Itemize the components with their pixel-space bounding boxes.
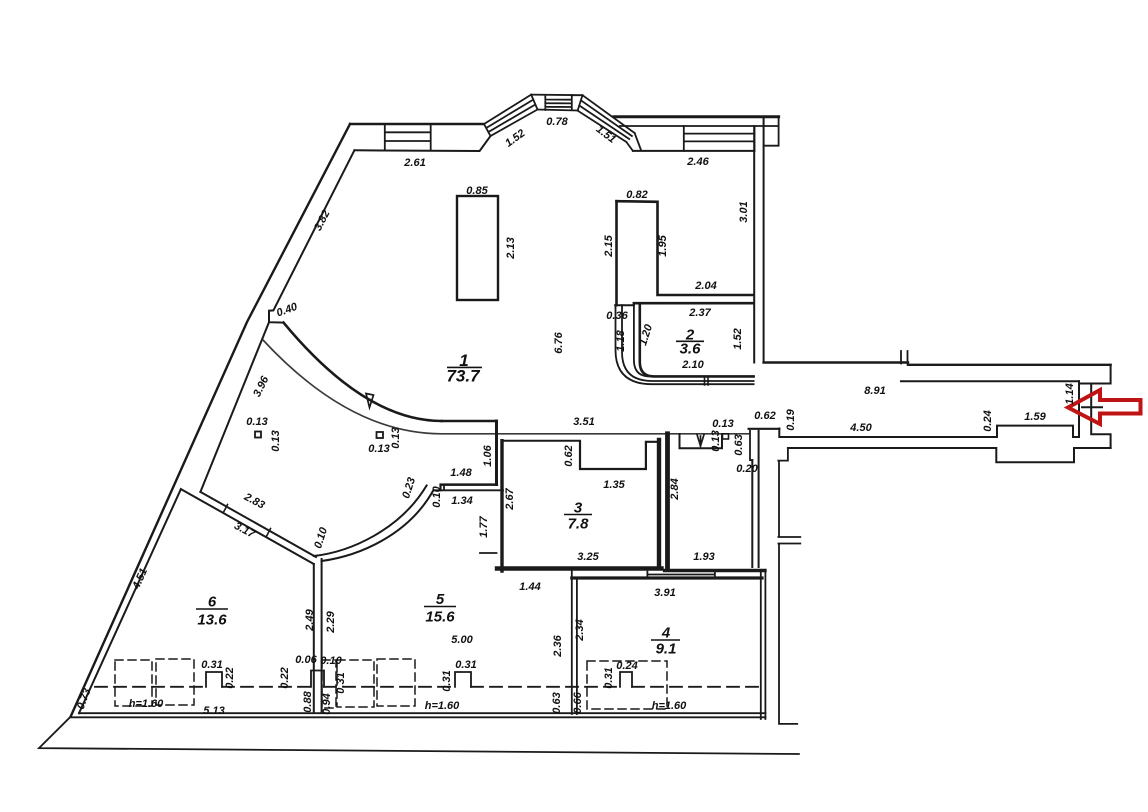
svg-text:1.93: 1.93 (693, 551, 714, 563)
svg-text:0.31: 0.31 (441, 670, 453, 691)
svg-text:0.31: 0.31 (201, 659, 222, 671)
svg-text:0.36: 0.36 (606, 310, 628, 322)
svg-text:0.22: 0.22 (279, 667, 291, 688)
svg-text:h=1.60: h=1.60 (425, 700, 460, 712)
svg-text:73.7: 73.7 (446, 367, 481, 386)
svg-text:0.13: 0.13 (270, 430, 282, 451)
svg-text:1.34: 1.34 (451, 495, 472, 507)
svg-text:0.19: 0.19 (785, 408, 797, 430)
svg-text:0.10: 0.10 (320, 655, 342, 667)
svg-text:0.88: 0.88 (302, 690, 314, 712)
svg-text:13.6: 13.6 (197, 612, 227, 629)
svg-text:2.10: 2.10 (681, 359, 704, 371)
svg-text:4: 4 (661, 625, 671, 642)
svg-text:0.22: 0.22 (224, 667, 236, 688)
svg-text:2.37: 2.37 (688, 307, 711, 319)
svg-text:0.06: 0.06 (295, 654, 317, 666)
svg-text:0.85: 0.85 (466, 185, 488, 197)
svg-text:2.15: 2.15 (603, 234, 615, 257)
svg-text:1.77: 1.77 (478, 515, 490, 537)
svg-text:0.24: 0.24 (616, 660, 637, 672)
svg-text:0.63: 0.63 (551, 692, 563, 713)
svg-text:5: 5 (436, 591, 445, 608)
svg-text:9.1: 9.1 (656, 641, 677, 658)
svg-text:0.63: 0.63 (733, 434, 745, 455)
svg-text:0.31: 0.31 (455, 659, 476, 671)
svg-text:0.13: 0.13 (712, 418, 733, 430)
svg-text:1.95: 1.95 (657, 234, 669, 256)
svg-text:3.51: 3.51 (573, 416, 594, 428)
svg-text:2.34: 2.34 (574, 619, 586, 641)
svg-text:0.13: 0.13 (368, 443, 389, 455)
svg-text:2.36: 2.36 (552, 634, 564, 657)
svg-text:0.66: 0.66 (572, 691, 584, 713)
svg-text:8.91: 8.91 (864, 385, 885, 397)
svg-text:0.31: 0.31 (603, 667, 615, 688)
svg-text:2.61: 2.61 (403, 157, 425, 169)
svg-text:1.44: 1.44 (519, 581, 540, 593)
svg-text:1.18: 1.18 (615, 329, 627, 351)
svg-text:0.31: 0.31 (335, 672, 347, 693)
svg-text:0.24: 0.24 (982, 410, 994, 431)
svg-text:2.84: 2.84 (669, 478, 681, 500)
svg-text:1.35: 1.35 (603, 479, 625, 491)
svg-text:0.82: 0.82 (626, 189, 647, 201)
svg-text:5.00: 5.00 (451, 634, 473, 646)
svg-text:0.10: 0.10 (431, 485, 443, 507)
svg-text:0.13: 0.13 (246, 416, 267, 428)
svg-text:0.94: 0.94 (321, 693, 333, 714)
svg-text:0.78: 0.78 (546, 116, 568, 128)
svg-text:3.6: 3.6 (680, 341, 702, 358)
svg-text:h=1.60: h=1.60 (129, 698, 164, 710)
svg-text:2.13: 2.13 (505, 237, 517, 259)
svg-text:2.67: 2.67 (504, 487, 516, 510)
svg-text:4.50: 4.50 (849, 422, 872, 434)
svg-text:3.01: 3.01 (738, 201, 750, 222)
svg-text:0.62: 0.62 (754, 410, 775, 422)
svg-text:1.59: 1.59 (1024, 411, 1046, 423)
svg-text:0.20: 0.20 (736, 463, 758, 475)
svg-text:1.14: 1.14 (1064, 383, 1076, 404)
svg-text:0.13: 0.13 (390, 427, 402, 448)
svg-text:0.13: 0.13 (710, 430, 722, 451)
svg-text:5.13: 5.13 (203, 705, 224, 717)
svg-text:7.8: 7.8 (568, 516, 590, 533)
svg-text:h=1.60: h=1.60 (652, 700, 687, 712)
svg-text:15.6: 15.6 (425, 609, 455, 626)
svg-text:2.29: 2.29 (325, 610, 337, 633)
svg-text:6: 6 (208, 594, 217, 611)
svg-text:2.04: 2.04 (694, 280, 716, 292)
svg-text:3.91: 3.91 (654, 587, 675, 599)
svg-text:1.52: 1.52 (732, 328, 744, 349)
svg-text:3.25: 3.25 (577, 551, 599, 563)
svg-text:1.48: 1.48 (450, 467, 472, 479)
svg-text:2.46: 2.46 (686, 156, 709, 168)
svg-text:2.49: 2.49 (304, 608, 316, 631)
svg-text:6.76: 6.76 (553, 331, 565, 353)
svg-text:1.06: 1.06 (482, 444, 494, 466)
svg-text:0.62: 0.62 (563, 445, 575, 466)
